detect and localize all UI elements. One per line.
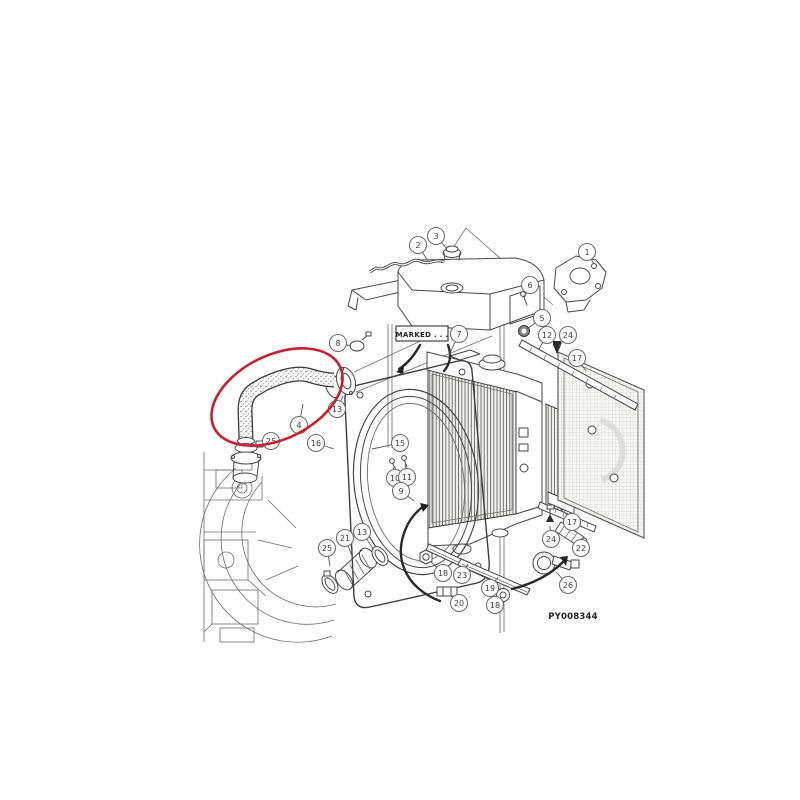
svg-text:6: 6 — [527, 281, 532, 290]
svg-text:16: 16 — [311, 439, 321, 448]
callout-25: 25 — [319, 540, 336, 567]
svg-text:9: 9 — [398, 487, 403, 496]
svg-text:20: 20 — [454, 599, 464, 608]
callout-21: 21 — [337, 530, 354, 557]
exploded-diagram-canvas: MARKED . . . PY008344 123678512241713425… — [0, 0, 800, 800]
svg-text:13: 13 — [357, 528, 367, 537]
sensor-26 — [533, 552, 579, 574]
svg-text:18: 18 — [438, 569, 448, 578]
svg-text:13: 13 — [332, 405, 342, 414]
svg-text:4: 4 — [296, 421, 301, 430]
svg-text:7: 7 — [456, 330, 461, 339]
svg-text:5: 5 — [539, 314, 544, 323]
callout-15: 15 — [372, 435, 409, 452]
svg-text:12: 12 — [542, 331, 552, 340]
plug-5 — [519, 326, 530, 337]
callout-22: 22 — [573, 540, 590, 557]
callout-16: 16 — [308, 435, 335, 452]
svg-text:11: 11 — [402, 473, 412, 482]
svg-text:2: 2 — [415, 241, 420, 250]
hose-clamp-8 — [350, 332, 371, 351]
svg-text:17: 17 — [567, 518, 577, 527]
callout-7: 7 — [449, 326, 468, 356]
callout-2: 2 — [410, 237, 429, 262]
svg-text:23: 23 — [457, 571, 467, 580]
engine-water-outlet — [231, 452, 261, 483]
svg-text:8: 8 — [335, 339, 340, 348]
svg-text:21: 21 — [340, 534, 350, 543]
radiator-cap — [483, 355, 501, 363]
svg-text:24: 24 — [563, 331, 573, 340]
svg-text:19: 19 — [485, 584, 495, 593]
callout-20: 20 — [451, 595, 468, 612]
screw-24-top — [553, 341, 561, 354]
marked-label: MARKED . . . — [396, 331, 449, 339]
callout-8: 8 — [330, 335, 352, 352]
shroud-screws — [390, 456, 407, 470]
svg-text:25: 25 — [322, 544, 332, 553]
callout-9: 9 — [393, 483, 415, 502]
callout-18: 18 — [487, 597, 504, 614]
callout-13: 13 — [354, 524, 375, 551]
svg-text:17: 17 — [572, 354, 582, 363]
outlet-bracket-plate — [554, 256, 606, 312]
marked-arrow — [399, 345, 420, 369]
svg-text:24: 24 — [546, 535, 556, 544]
fitting-20 — [437, 587, 457, 596]
svg-text:15: 15 — [395, 439, 405, 448]
callout-17: 17 — [564, 511, 581, 531]
callout-12: 12 — [539, 327, 556, 350]
svg-text:1: 1 — [584, 248, 589, 257]
nut-18 — [420, 550, 432, 564]
svg-text:18: 18 — [490, 601, 500, 610]
svg-text:26: 26 — [563, 581, 573, 590]
callout-3: 3 — [428, 228, 448, 250]
image-code: PY008344 — [548, 612, 597, 622]
radiator-assembly — [427, 350, 542, 554]
svg-text:3: 3 — [433, 232, 438, 241]
callout-26: 26 — [556, 572, 577, 594]
coolant-reservoir-assembly — [348, 246, 544, 330]
parts-diagram-page: MARKED . . . PY008344 123678512241713425… — [0, 0, 800, 800]
radiator-right-tank — [516, 391, 542, 514]
callout-24: 24 — [559, 327, 577, 347]
svg-text:22: 22 — [576, 544, 586, 553]
